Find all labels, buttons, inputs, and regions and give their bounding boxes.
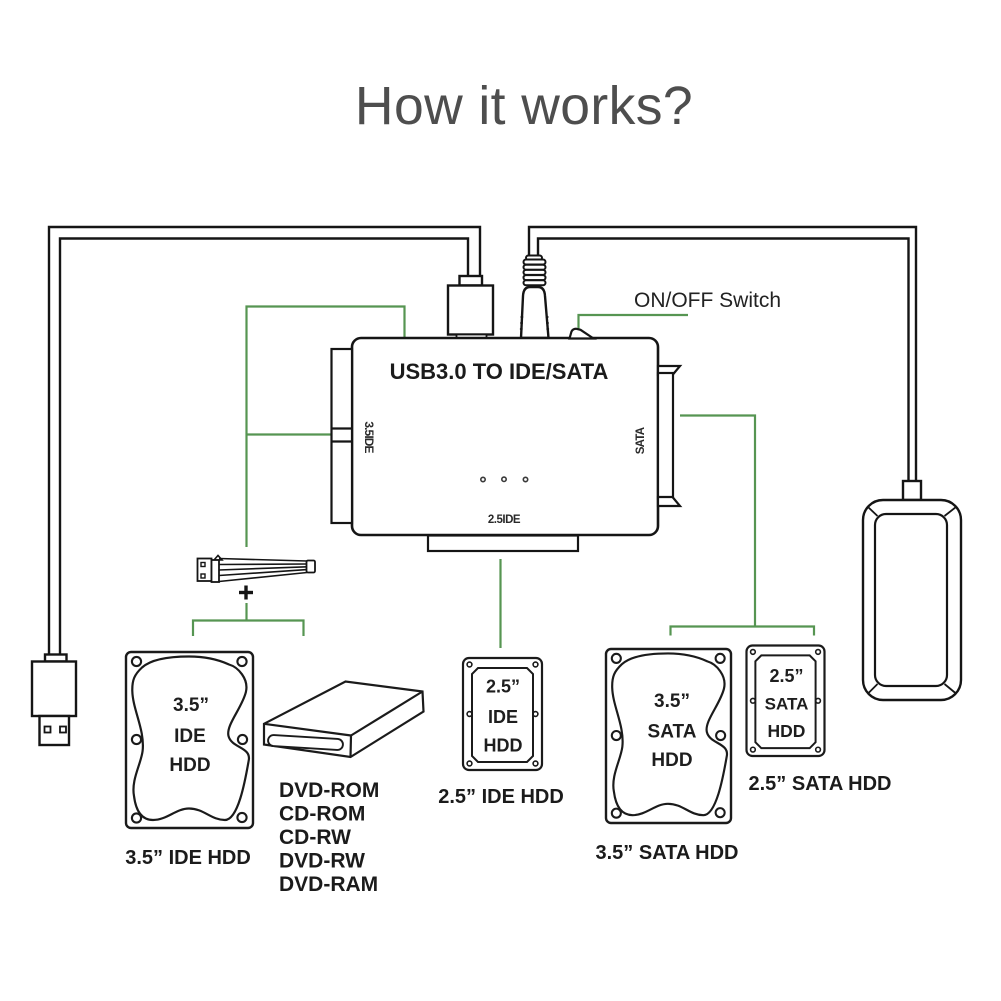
svg-text:IDE: IDE — [488, 707, 518, 727]
svg-text:SATA: SATA — [765, 695, 809, 714]
svg-text:How it works?: How it works? — [355, 77, 693, 136]
svg-text:HDD: HDD — [169, 755, 210, 776]
svg-text:3.5”: 3.5” — [173, 695, 209, 716]
svg-text:2.5” IDE HDD: 2.5” IDE HDD — [438, 786, 564, 808]
svg-text:HDD: HDD — [484, 736, 523, 756]
svg-text:DVD-ROM: DVD-ROM — [279, 779, 379, 802]
svg-text:DVD-RAM: DVD-RAM — [279, 873, 378, 896]
svg-text:SATA: SATA — [648, 722, 697, 743]
svg-text:2.5”: 2.5” — [769, 666, 803, 686]
svg-text:3.5”: 3.5” — [654, 691, 690, 712]
svg-text:SATA: SATA — [635, 427, 647, 454]
svg-text:USB3.0 TO IDE/SATA: USB3.0 TO IDE/SATA — [390, 359, 609, 384]
svg-text:HDD: HDD — [651, 750, 692, 771]
svg-text:2.5” SATA HDD: 2.5” SATA HDD — [749, 773, 892, 795]
svg-text:HDD: HDD — [768, 721, 806, 741]
svg-text:CD-ROM: CD-ROM — [279, 803, 365, 826]
svg-text:2.5IDE: 2.5IDE — [488, 514, 521, 526]
svg-text:2.5”: 2.5” — [486, 677, 520, 697]
svg-text:3.5” SATA HDD: 3.5” SATA HDD — [596, 842, 739, 864]
svg-text:3.5” IDE HDD: 3.5” IDE HDD — [125, 847, 251, 869]
svg-text:IDE: IDE — [174, 726, 206, 747]
svg-text:CD-RW: CD-RW — [279, 826, 351, 849]
svg-text:DVD-RW: DVD-RW — [279, 850, 365, 873]
svg-text:3.5IDE: 3.5IDE — [362, 421, 376, 453]
svg-text:ON/OFF Switch: ON/OFF Switch — [634, 289, 781, 312]
